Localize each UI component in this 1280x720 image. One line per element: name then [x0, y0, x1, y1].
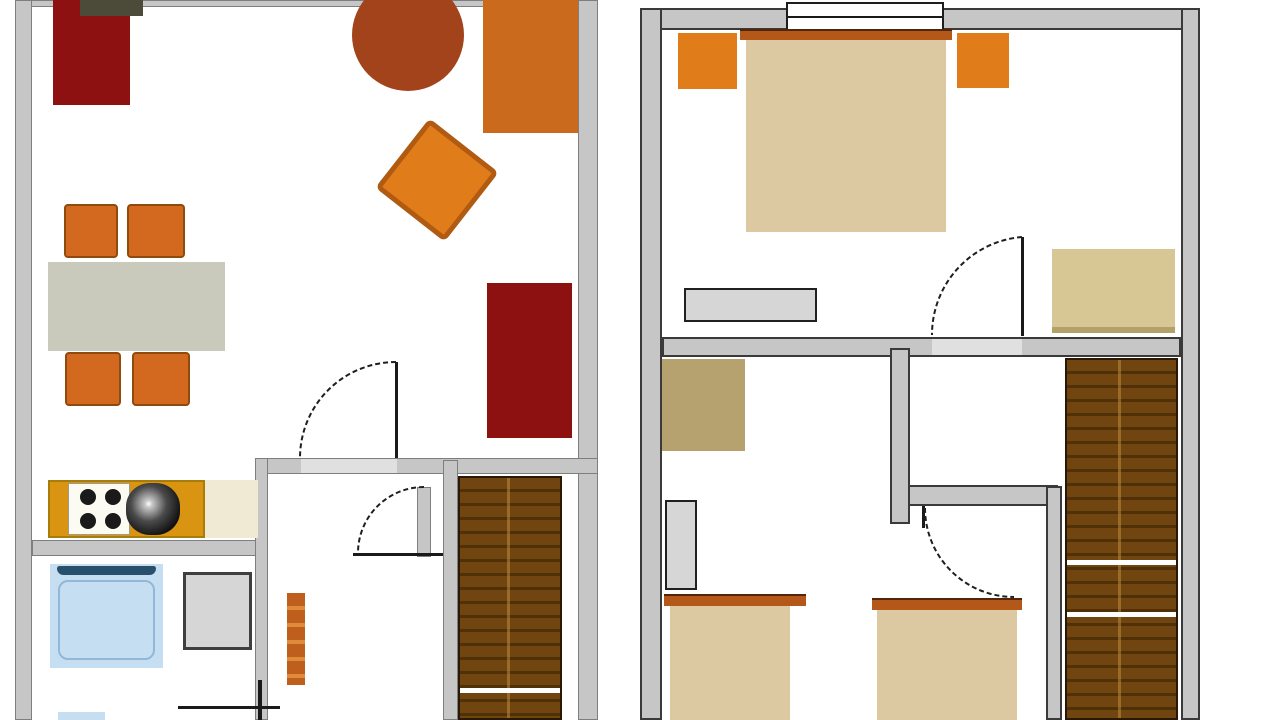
single-bed-1 [670, 606, 790, 720]
uf-stair-landing-line-1 [1067, 560, 1176, 565]
dining-chair-3 [65, 352, 121, 406]
sofa [483, 0, 578, 133]
uf-left-wall [640, 8, 662, 720]
gf-kitchen-bath-wall [32, 540, 268, 556]
bathtub-inner [58, 580, 155, 660]
dining-chair-2 [127, 204, 185, 258]
bedroom-door-arc [932, 237, 1022, 335]
burner-3 [80, 513, 96, 529]
single-bed-2-headboard [872, 598, 1022, 610]
bath-door-frame-h [178, 706, 280, 709]
double-bed [746, 40, 946, 232]
burner-1 [80, 489, 96, 505]
burner-4 [105, 513, 121, 529]
gf-right-wall [578, 0, 598, 720]
dining-chair-4 [132, 352, 190, 406]
living-door-leaf [395, 362, 398, 458]
bedroom-door-leaf [1021, 237, 1024, 336]
uf-bedroom-doorway [932, 339, 1022, 355]
uf-stair-wall [1046, 486, 1062, 720]
double-bed-headboard [740, 29, 952, 40]
stove [68, 483, 130, 535]
uf-right-wall [1181, 8, 1200, 720]
uf-inner-wall-horizontal [908, 485, 1058, 506]
burner-2 [105, 489, 121, 505]
second-bedroom-door-arc [925, 508, 1014, 597]
bedroom-chest-tan-edge [1052, 327, 1175, 333]
bedroom-chest-tan [1052, 249, 1175, 333]
desk [662, 359, 745, 451]
wardrobe [665, 500, 697, 590]
single-bed-2 [877, 610, 1017, 720]
gf-staircase [458, 476, 562, 720]
washing-machine [183, 572, 252, 650]
dining-chair-1 [64, 204, 118, 258]
floor-plan-canvas [0, 0, 1280, 720]
bathtub-rim [57, 566, 156, 575]
counter-worktop [205, 480, 258, 538]
bath-door-frame-v [258, 680, 262, 720]
second-bedroom-door-leaf [922, 506, 925, 528]
tv-set [80, 0, 143, 16]
coffee-table [352, 0, 464, 91]
kitchen-sink [126, 483, 180, 535]
armchair-rotated [375, 118, 499, 242]
bedroom-window-mullion [788, 16, 942, 18]
uf-inner-wall-vertical [890, 348, 910, 524]
reading-chair [487, 283, 572, 438]
uf-staircase [1065, 358, 1178, 720]
bathroom-sink [58, 712, 105, 720]
bedroom-dresser-low [684, 288, 817, 322]
gf-stair-wall [443, 460, 458, 720]
gf-stair-landing-line [460, 688, 560, 693]
dining-table [48, 262, 225, 351]
uf-stair-landing-line-2 [1067, 612, 1176, 617]
gf-living-doorway [301, 459, 397, 473]
stair-door-leaf [353, 553, 443, 556]
single-bed-1-headboard [664, 594, 806, 606]
gf-left-wall [15, 0, 32, 720]
nightstand-left [678, 33, 737, 89]
living-door-arc [300, 362, 396, 458]
hall-radiator [287, 593, 305, 685]
nightstand-right [957, 33, 1009, 88]
stair-door-arc [358, 487, 424, 553]
uf-bedroom-wall [662, 337, 1181, 357]
gf-stair-door-jamb [417, 487, 431, 557]
